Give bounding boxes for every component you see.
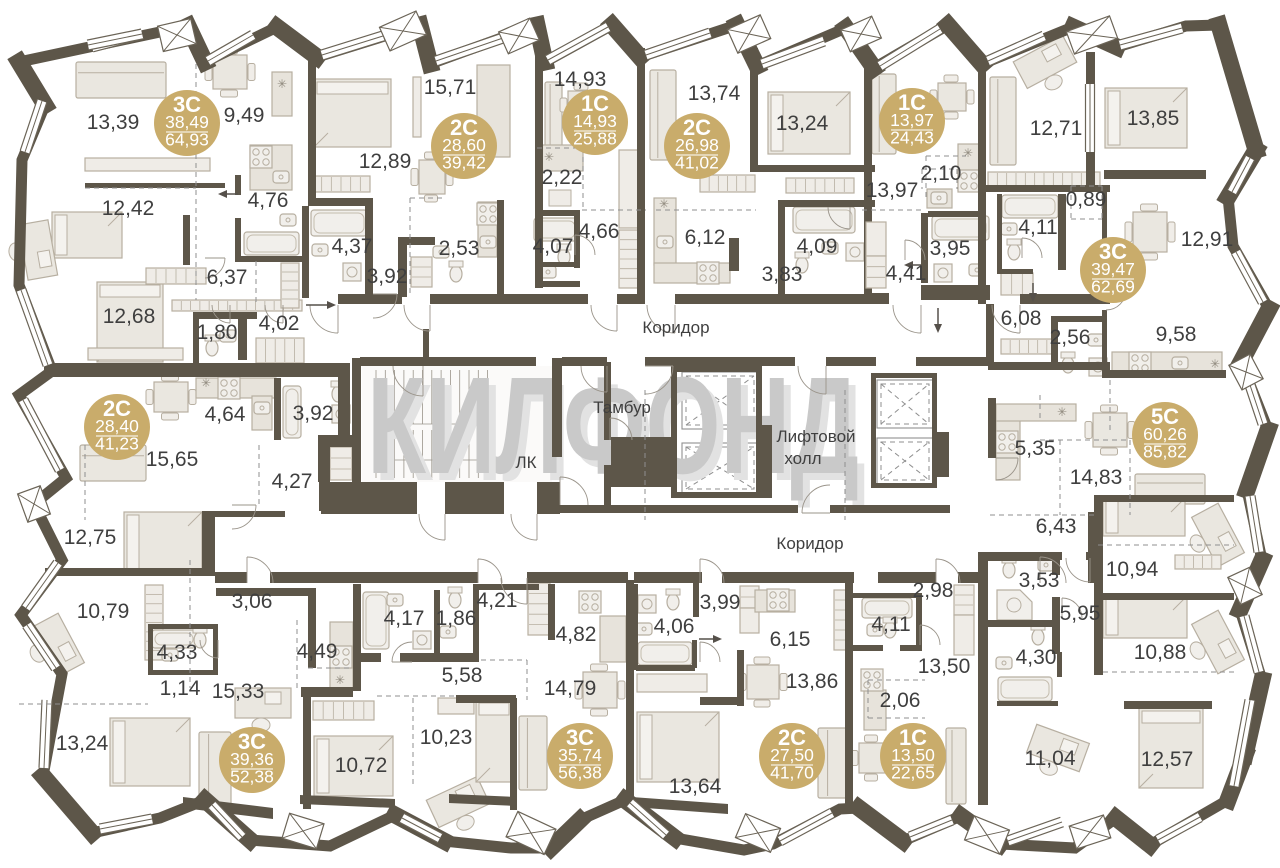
- svg-text:5,95: 5,95: [1060, 602, 1101, 625]
- svg-text:62,69: 62,69: [1091, 277, 1135, 297]
- svg-text:13,85: 13,85: [1127, 107, 1180, 130]
- svg-text:13,86: 13,86: [786, 670, 839, 693]
- svg-text:2,22: 2,22: [542, 166, 583, 189]
- svg-text:12,89: 12,89: [359, 150, 412, 173]
- svg-text:41,02: 41,02: [675, 153, 719, 173]
- svg-text:41,70: 41,70: [770, 763, 814, 783]
- svg-text:Коридор: Коридор: [776, 534, 843, 553]
- svg-text:1,86: 1,86: [436, 607, 477, 630]
- svg-text:4,07: 4,07: [533, 235, 574, 258]
- svg-text:2,53: 2,53: [439, 237, 480, 260]
- svg-text:10,72: 10,72: [335, 754, 388, 777]
- svg-text:0,89: 0,89: [1066, 188, 1107, 211]
- svg-text:10,94: 10,94: [1106, 558, 1159, 581]
- svg-text:6,12: 6,12: [685, 226, 726, 249]
- svg-text:4,64: 4,64: [205, 403, 246, 426]
- svg-text:4,41: 4,41: [886, 262, 927, 285]
- svg-text:3,83: 3,83: [762, 263, 803, 286]
- svg-text:4,09: 4,09: [797, 235, 838, 258]
- svg-text:4,17: 4,17: [384, 607, 425, 630]
- svg-text:56,38: 56,38: [558, 763, 602, 783]
- svg-text:13,64: 13,64: [669, 775, 722, 798]
- svg-text:4,27: 4,27: [272, 470, 313, 493]
- svg-text:4,33: 4,33: [157, 641, 198, 664]
- svg-text:12,91: 12,91: [1181, 228, 1234, 251]
- svg-text:4,21: 4,21: [477, 589, 518, 612]
- svg-text:13,24: 13,24: [56, 732, 109, 755]
- svg-text:5,35: 5,35: [1015, 437, 1056, 460]
- svg-text:41,23: 41,23: [95, 434, 139, 454]
- svg-text:✳: ✳: [963, 146, 973, 160]
- svg-text:6,43: 6,43: [1036, 515, 1077, 538]
- svg-text:24,43: 24,43: [890, 128, 934, 148]
- svg-text:холл: холл: [784, 449, 821, 468]
- svg-text:2,06: 2,06: [880, 689, 921, 712]
- svg-text:4,11: 4,11: [1018, 216, 1057, 239]
- svg-text:10,88: 10,88: [1134, 641, 1187, 664]
- svg-text:6,08: 6,08: [1001, 307, 1042, 330]
- svg-text:13,74: 13,74: [688, 82, 741, 105]
- svg-text:39,42: 39,42: [442, 153, 486, 173]
- svg-text:12,57: 12,57: [1141, 748, 1194, 771]
- svg-text:4,82: 4,82: [556, 623, 597, 646]
- svg-text:4,37: 4,37: [332, 235, 373, 258]
- svg-text:3,99: 3,99: [700, 591, 741, 614]
- svg-text:11,04: 11,04: [1025, 747, 1076, 770]
- svg-text:9,58: 9,58: [1156, 323, 1197, 346]
- svg-text:52,38: 52,38: [230, 767, 274, 787]
- svg-text:13,39: 13,39: [87, 111, 140, 134]
- svg-text:14,79: 14,79: [544, 677, 597, 700]
- svg-text:4,02: 4,02: [259, 312, 300, 335]
- svg-text:4,30: 4,30: [1016, 646, 1057, 669]
- svg-text:✳: ✳: [277, 77, 287, 91]
- svg-text:5,58: 5,58: [442, 664, 483, 687]
- svg-text:12,75: 12,75: [64, 526, 117, 549]
- svg-text:1,80: 1,80: [197, 321, 238, 344]
- svg-text:14,93: 14,93: [554, 68, 607, 91]
- svg-text:10,79: 10,79: [77, 600, 130, 623]
- svg-text:2,98: 2,98: [913, 579, 954, 602]
- svg-text:9,49: 9,49: [224, 104, 265, 127]
- svg-text:Коридор: Коридор: [642, 318, 709, 337]
- svg-text:4,66: 4,66: [579, 220, 620, 243]
- svg-text:4,06: 4,06: [654, 615, 695, 638]
- svg-text:12,68: 12,68: [103, 305, 156, 328]
- svg-text:Тамбур: Тамбур: [593, 398, 651, 417]
- svg-text:Лифтовой: Лифтовой: [776, 427, 855, 446]
- svg-text:✳: ✳: [659, 197, 669, 211]
- svg-text:ЛК: ЛК: [515, 453, 536, 472]
- svg-text:85,82: 85,82: [1143, 442, 1187, 462]
- svg-text:13,24: 13,24: [776, 112, 829, 135]
- svg-text:12,42: 12,42: [102, 197, 155, 220]
- svg-text:13,50: 13,50: [918, 655, 971, 678]
- svg-text:15,33: 15,33: [212, 680, 265, 703]
- svg-text:15,65: 15,65: [146, 448, 199, 471]
- svg-text:✳: ✳: [335, 673, 345, 687]
- svg-text:✳: ✳: [201, 376, 211, 390]
- svg-text:✳: ✳: [1210, 357, 1220, 371]
- svg-text:15,71: 15,71: [424, 76, 477, 99]
- svg-text:25,88: 25,88: [573, 129, 617, 149]
- svg-text:2,10: 2,10: [921, 162, 962, 185]
- svg-text:3,92: 3,92: [293, 402, 334, 425]
- svg-text:10,23: 10,23: [420, 726, 473, 749]
- svg-text:6,37: 6,37: [207, 266, 248, 289]
- svg-text:22,65: 22,65: [891, 763, 935, 783]
- svg-text:13,97: 13,97: [866, 179, 919, 202]
- svg-text:12,71: 12,71: [1030, 117, 1083, 140]
- svg-text:3,06: 3,06: [232, 590, 273, 613]
- svg-text:4,76: 4,76: [248, 189, 289, 212]
- svg-text:6,15: 6,15: [770, 628, 811, 651]
- svg-text:3,95: 3,95: [930, 237, 971, 260]
- svg-text:1,14: 1,14: [160, 677, 201, 700]
- svg-text:4,49: 4,49: [297, 640, 338, 663]
- svg-text:64,93: 64,93: [165, 130, 209, 150]
- svg-text:3,92: 3,92: [367, 265, 408, 288]
- svg-text:4,11: 4,11: [871, 613, 910, 636]
- svg-text:14,83: 14,83: [1070, 466, 1123, 489]
- svg-text:✳: ✳: [1057, 405, 1067, 419]
- svg-text:2,56: 2,56: [1050, 326, 1091, 349]
- svg-text:3,53: 3,53: [1019, 569, 1060, 592]
- svg-text:✳: ✳: [544, 150, 554, 164]
